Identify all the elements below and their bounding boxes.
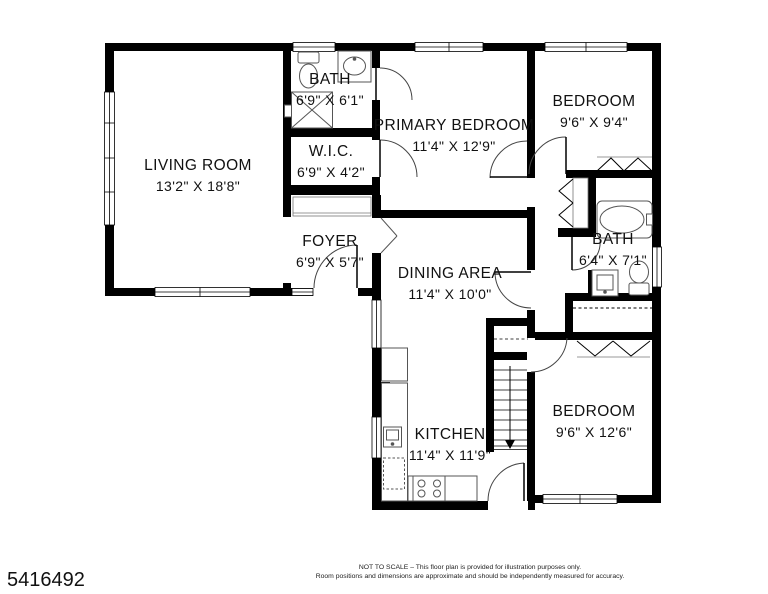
room-label-living-room: LIVING ROOM 13'2" X 18'8" [144,156,252,196]
room-label-bath-1: BATH 6'9" X 6'1" [296,70,364,110]
room-label-bath-2: BATH 6'4" X 7'1" [579,230,647,270]
stove-fixture [413,476,445,501]
floorplan-drawing [0,0,768,594]
room-label-wic: W.I.C. 6'9" X 4'2" [297,142,365,182]
stairs-down-arrow-icon [505,440,515,449]
room-name: FOYER [296,232,364,252]
room-name: KITCHEN [409,425,491,445]
room-label-primary-bedroom: PRIMARY BEDROOM 11'4" X 12'9" [374,116,534,156]
room-name: LIVING ROOM [144,156,252,176]
room-name: BEDROOM [553,402,636,422]
disclaimer-line-1: NOT TO SCALE – This floor plan is provid… [250,563,690,572]
refrigerator-fixture [382,348,408,381]
kitchen-sink-fixture [384,427,402,447]
room-dimensions: 9'6" X 12'6" [553,422,636,442]
room-dimensions: 6'9" X 4'2" [297,162,365,182]
room-dimensions: 11'4" X 11'9" [409,445,491,465]
room-dimensions: 11'4" X 10'0" [398,284,502,304]
floor-plan-page: LIVING ROOM 13'2" X 18'8" BATH 6'9" X 6'… [0,0,768,594]
room-dimensions: 6'4" X 7'1" [579,250,647,270]
disclaimer: NOT TO SCALE – This floor plan is provid… [250,563,690,581]
room-name: BEDROOM [553,92,636,112]
room-name: W.I.C. [297,142,365,162]
plan-id: 5416492 [7,569,85,592]
room-name: PRIMARY BEDROOM [374,116,534,136]
room-dimensions: 13'2" X 18'8" [144,176,252,196]
room-name: DINING AREA [398,264,502,284]
sink-fixture [592,270,618,296]
disclaimer-line-2: Room positions and dimensions are approx… [250,572,690,581]
room-dimensions: 9'6" X 9'4" [553,112,636,132]
room-label-foyer: FOYER 6'9" X 5'7" [296,232,364,272]
room-name: BATH [579,230,647,250]
room-dimensions: 6'9" X 6'1" [296,90,364,110]
foyer-closet [293,197,371,216]
room-label-dining-area: DINING AREA 11'4" X 10'0" [398,264,502,304]
room-label-bedroom-se: BEDROOM 9'6" X 12'6" [553,402,636,442]
room-dimensions: 6'9" X 5'7" [296,252,364,272]
room-name: BATH [296,70,364,90]
room-label-bedroom-ne: BEDROOM 9'6" X 9'4" [553,92,636,132]
room-label-kitchen: KITCHEN 11'4" X 11'9" [409,425,491,465]
dishwasher-fixture [384,458,405,489]
cased-opening-marks [381,218,397,253]
room-dimensions: 11'4" X 12'9" [374,136,534,156]
